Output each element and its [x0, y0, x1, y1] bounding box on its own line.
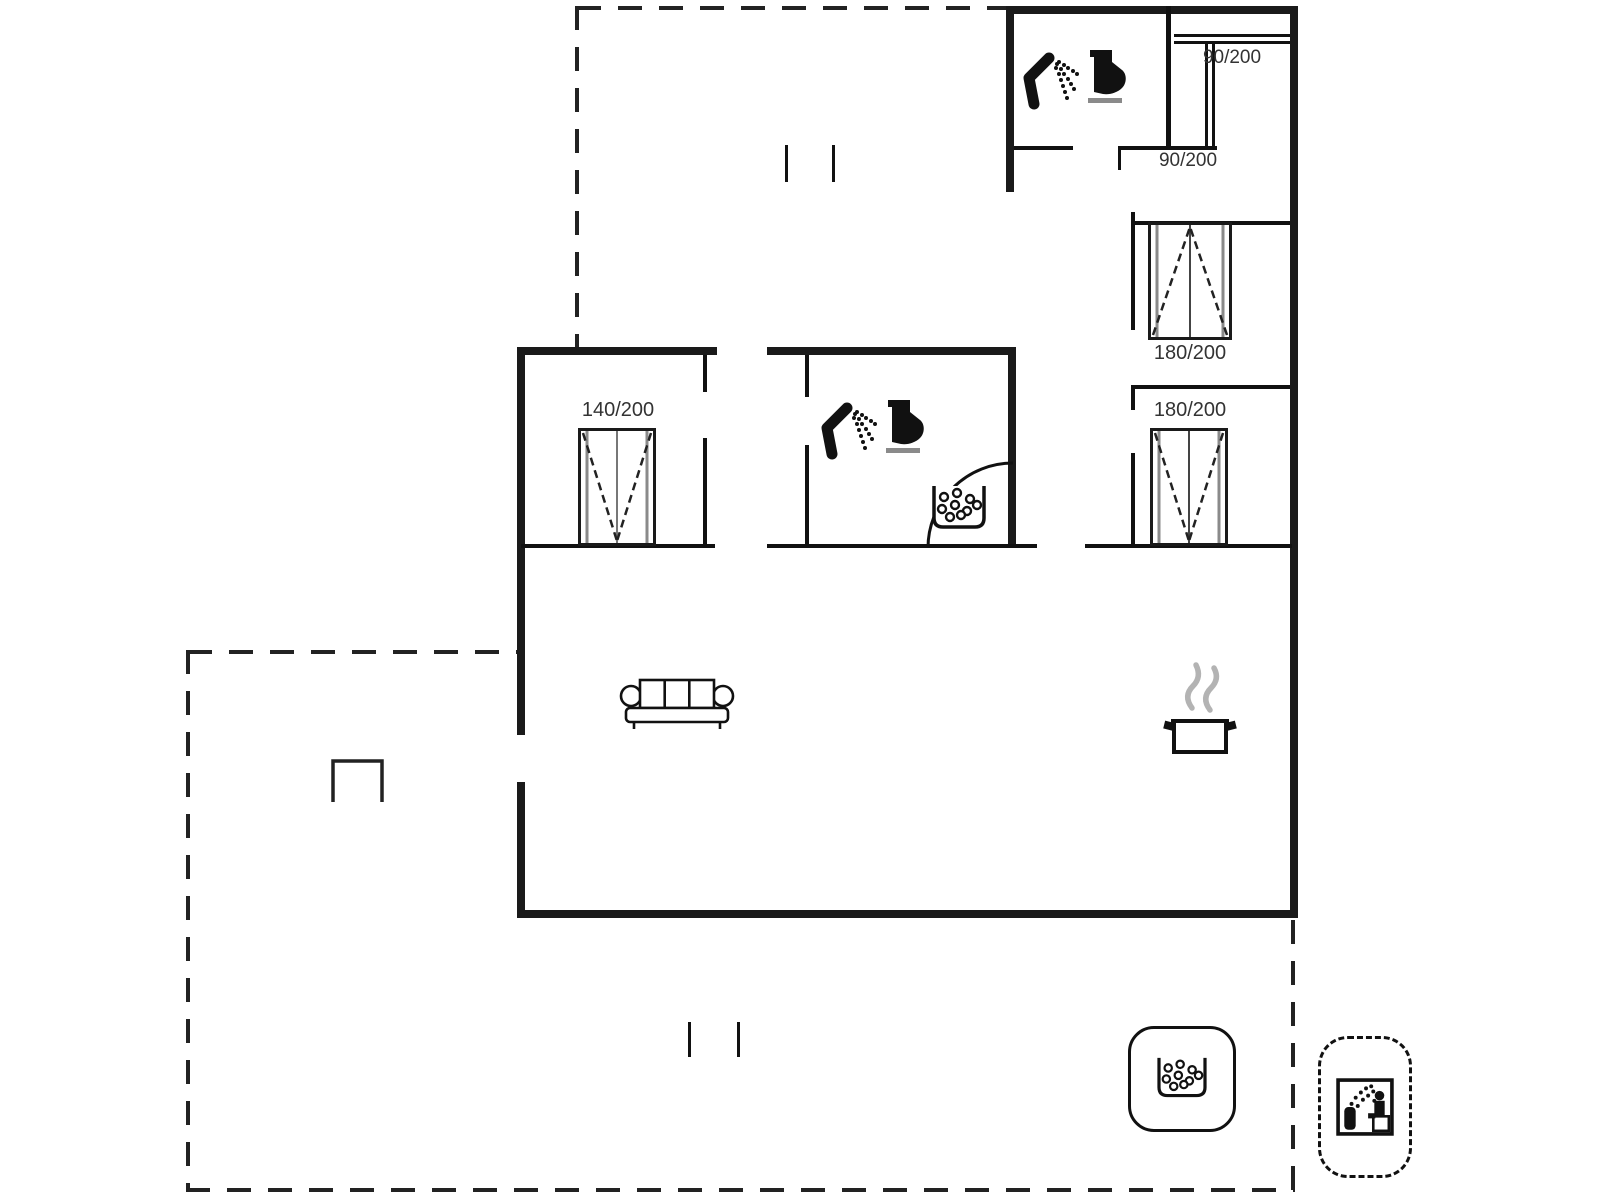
bed-size-label: 90/200: [1152, 150, 1224, 172]
wall-bedroomA-left: [1131, 212, 1135, 330]
floor-plan: 90/200 90/200 180/200 180/200 140/200: [0, 0, 1600, 1200]
sauna-badge: [1318, 1036, 1412, 1178]
wall-mid-top-right: [767, 347, 1016, 355]
terrace-bottom-outline: [186, 1188, 1295, 1192]
terrace-top-outline: [577, 6, 1010, 10]
toilet-icon: [878, 398, 926, 458]
hot-tub-icon: [1153, 1056, 1211, 1102]
wall-bedroomB-left-lower: [1131, 453, 1135, 548]
terrace-left-outline: [186, 650, 190, 1192]
shower-icon: [1026, 50, 1080, 108]
wall-exterior-right: [1290, 6, 1298, 918]
sofa-icon: [618, 676, 736, 732]
wall-exterior-top: [1006, 6, 1298, 14]
wall-bedroomC-right-upper: [703, 355, 707, 392]
wall-exterior-left-lower: [517, 782, 525, 918]
wall-topblock-bottom-a: [1014, 146, 1073, 150]
wall-bathroom-mid-left-upper: [805, 355, 809, 397]
wall-exterior-bottom: [520, 910, 1298, 918]
wall-bedroomAB-divider: [1133, 385, 1290, 389]
wall-topblock-left: [1006, 6, 1014, 192]
whirlpool-tub-icon: [928, 484, 990, 534]
cooking-pot-icon: [1164, 704, 1236, 756]
bed-size-label: 180/200: [1132, 342, 1248, 365]
wall-mid-top-left: [517, 347, 717, 355]
wall-bathroom-top-right: [1166, 6, 1171, 150]
sauna-icon: [1336, 1078, 1394, 1136]
window-tick: [688, 1022, 691, 1057]
wall-bedroomC-right-lower: [703, 438, 707, 548]
bunk-bed-line-h1: [1174, 34, 1290, 37]
bed-size-label: 140/200: [560, 399, 676, 422]
hot-tub-badge: [1128, 1026, 1236, 1132]
door-jamb-tick: [1118, 150, 1121, 170]
steam-icon: [1180, 662, 1228, 710]
toilet-icon: [1080, 48, 1128, 108]
bunk-bed-line-h2: [1174, 41, 1290, 44]
window-tick: [832, 145, 835, 182]
bed-size-label: 180/200: [1132, 399, 1248, 422]
shower-icon: [824, 400, 878, 458]
window-tick: [785, 145, 788, 182]
double-bed-180-bottom: [1150, 428, 1228, 546]
wall-exterior-left-upper: [517, 347, 525, 735]
bed-size-label: 90/200: [1196, 47, 1268, 69]
wall-hall-bottom: [1012, 544, 1037, 548]
double-bed-140: [578, 428, 656, 546]
wall-bathroom-mid-left-lower: [805, 445, 809, 548]
terrace-top-left-outline: [575, 6, 579, 349]
grill-icon: [330, 758, 386, 804]
double-bed-180-top: [1148, 222, 1232, 340]
window-tick: [737, 1022, 740, 1057]
terrace-bottom-right-outline: [1291, 920, 1295, 1192]
terrace-left-top-outline: [188, 650, 519, 654]
